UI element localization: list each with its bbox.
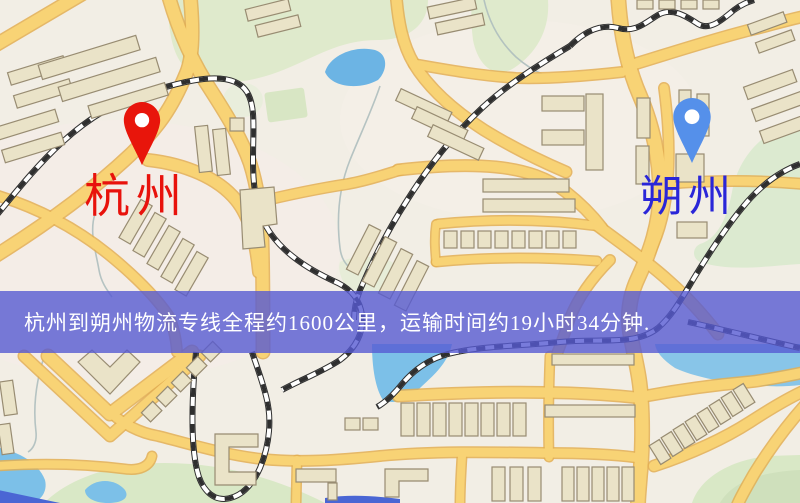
route-info-banner: 杭州到朔州物流专线全程约1600公里，运输时间约19小时34分钟. [0,291,800,353]
map-graphic [0,0,800,503]
route-info-text: 杭州到朔州物流专线全程约1600公里，运输时间约19小时34分钟. [24,307,650,337]
destination-label: 朔州 [640,176,736,219]
map-image: 杭州 朔州 杭州到朔州物流专线全程约1600公里，运输时间约19小时34分钟. [0,0,800,503]
origin-label: 杭州 [84,174,188,220]
